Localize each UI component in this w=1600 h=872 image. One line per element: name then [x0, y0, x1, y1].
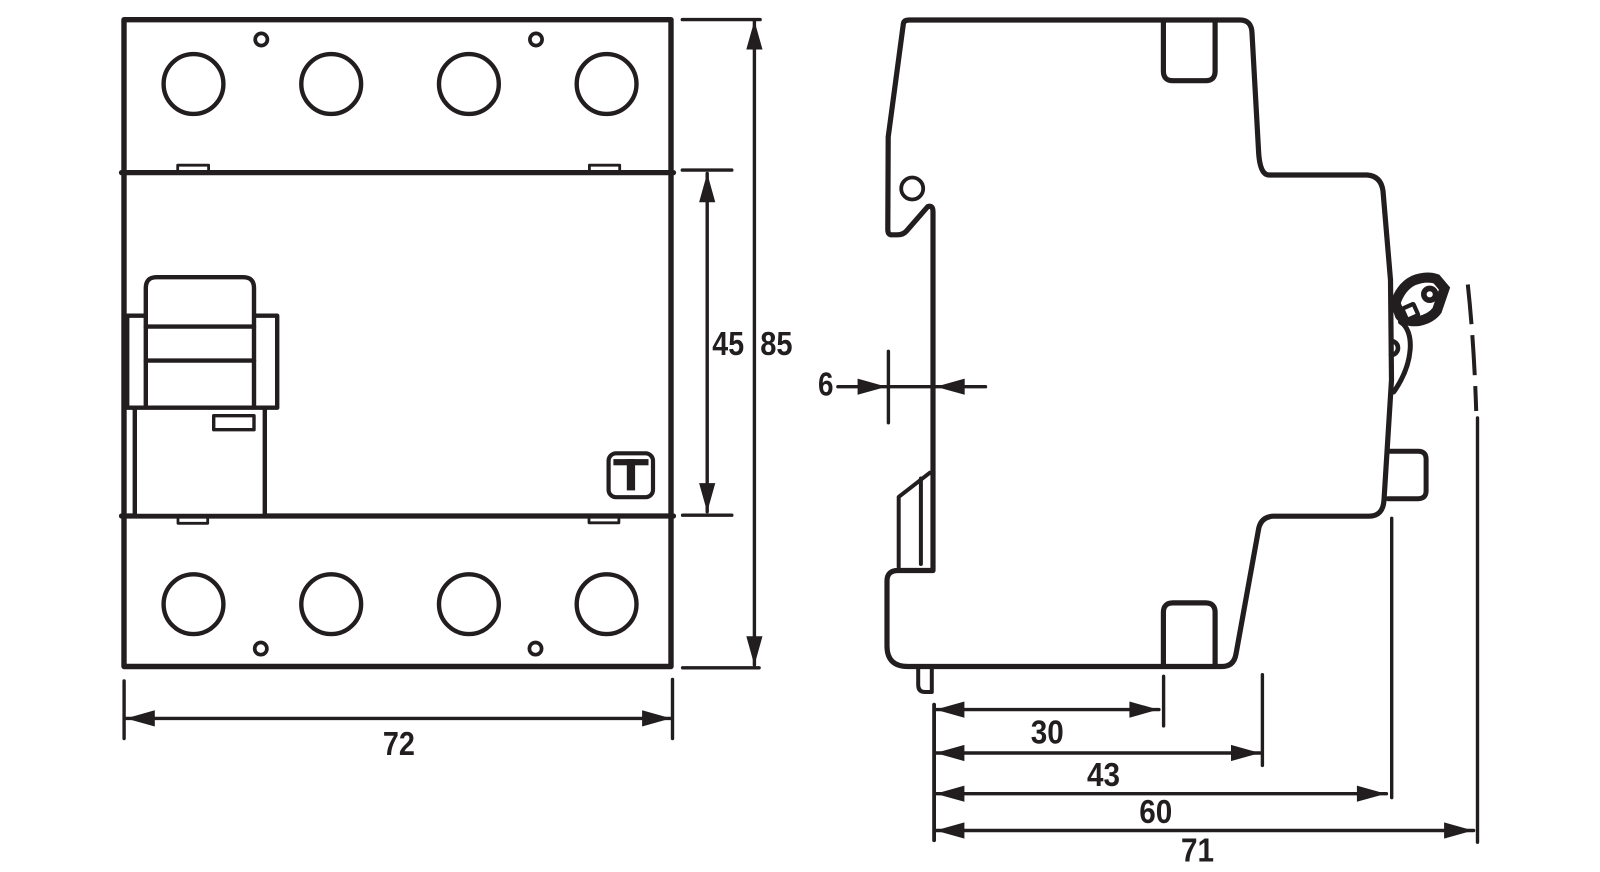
- svg-text:85: 85: [760, 326, 792, 363]
- svg-text:30: 30: [1031, 714, 1064, 751]
- svg-text:72: 72: [383, 726, 415, 763]
- svg-text:71: 71: [1181, 833, 1214, 870]
- svg-text:45: 45: [712, 326, 744, 363]
- svg-text:60: 60: [1139, 794, 1172, 831]
- svg-text:43: 43: [1087, 757, 1120, 794]
- svg-text:6: 6: [818, 366, 834, 403]
